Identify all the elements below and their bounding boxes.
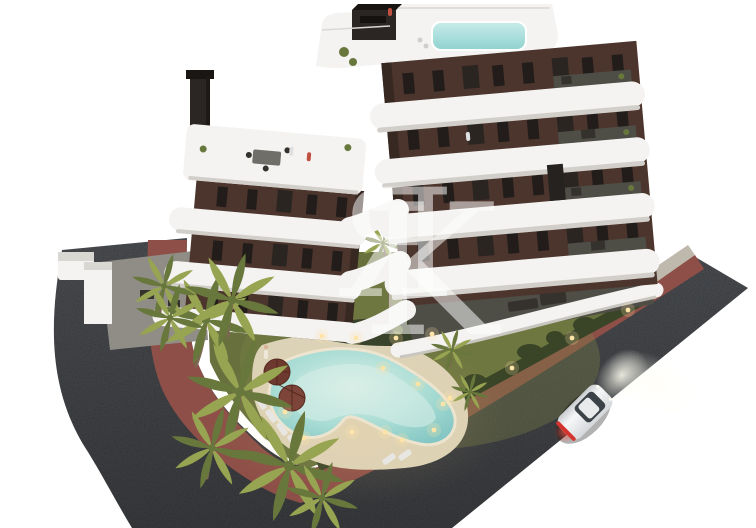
watermark-letter-k: K — [362, 165, 501, 377]
rooftop-pool — [432, 22, 526, 50]
chimney — [547, 164, 566, 201]
render-canvas: Я K — [0, 0, 756, 528]
architectural-render-image: Я K — [0, 0, 756, 528]
person-on-roof — [388, 8, 392, 16]
person-at-pool — [264, 345, 268, 359]
chimney — [186, 70, 214, 134]
